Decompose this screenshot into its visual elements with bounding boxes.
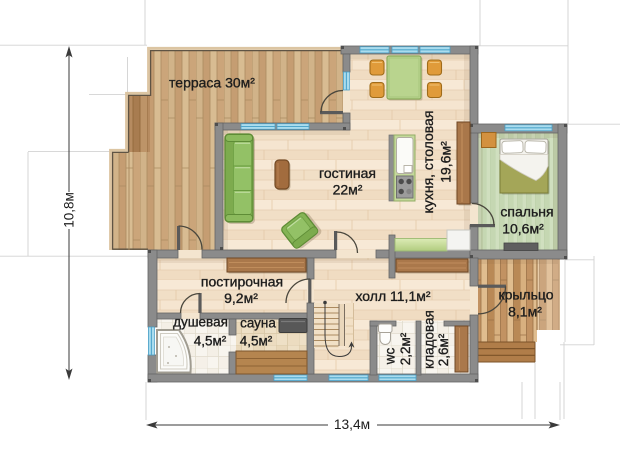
svg-text:4,5м²: 4,5м² [194,334,227,349]
svg-text:кладовая: кладовая [422,310,437,369]
svg-text:13,4м: 13,4м [334,417,370,432]
svg-text:19,6м²: 19,6м² [438,141,454,183]
svg-text:кухня, столовая: кухня, столовая [420,111,436,214]
svg-text:4,5м²: 4,5м² [240,334,273,349]
svg-text:2,6м²: 2,6м² [436,333,451,366]
svg-text:постирочная: постирочная [201,274,283,290]
svg-text:спальня: спальня [500,204,553,220]
svg-text:wc: wc [383,348,398,366]
svg-text:душевая: душевая [173,315,228,330]
svg-text:гостиная: гостиная [319,165,376,181]
svg-text:9,2м²: 9,2м² [224,290,258,306]
svg-text:2,2м²: 2,2м² [398,332,413,365]
svg-text:22м²: 22м² [333,182,363,198]
svg-text:терраса 30м²: терраса 30м² [169,75,255,91]
svg-text:холл 11,1м²: холл 11,1м² [355,288,430,304]
svg-text:10,6м²: 10,6м² [502,221,544,237]
svg-text:8,1м²: 8,1м² [508,304,542,320]
svg-text:10,8м: 10,8м [62,192,77,228]
svg-text:крыльцо: крыльцо [498,287,553,303]
svg-text:сауна: сауна [240,316,276,331]
